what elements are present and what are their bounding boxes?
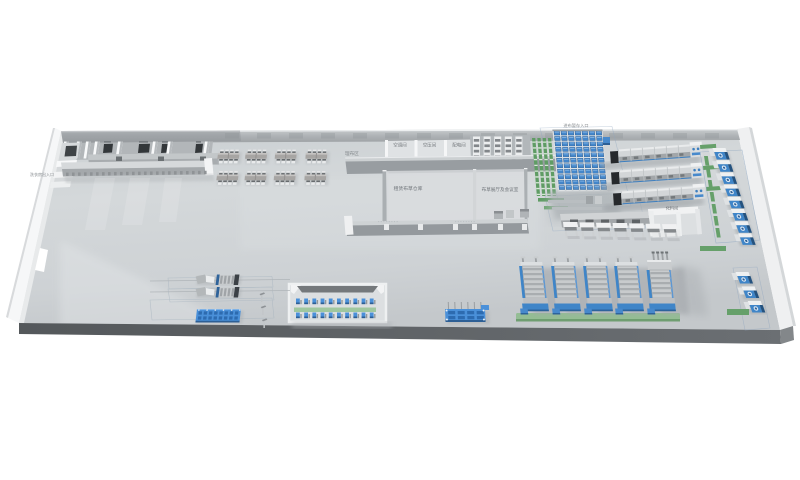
svg-text:空调间: 空调间 <box>393 142 406 149</box>
svg-text:洗衣房出入口: 洗衣房出入口 <box>30 171 54 177</box>
svg-text:布草展厅及会议室: 布草展厅及会议室 <box>482 186 519 193</box>
svg-text:空压间: 空压间 <box>423 142 436 149</box>
svg-text:▪ ▪ ▪ ▪ ▪ ▪ ▪ ▪: ▪ ▪ ▪ ▪ ▪ ▪ ▪ ▪ <box>378 219 399 224</box>
svg-text:配电间: 配电间 <box>452 142 465 149</box>
svg-text:租赁布草仓库: 租赁布草仓库 <box>394 185 423 192</box>
svg-text:理布区: 理布区 <box>345 150 359 157</box>
svg-text:进布暂存入口: 进布暂存入口 <box>563 122 588 129</box>
svg-text:▪ ▪ ▪ ▪ ▪ ▪ ▪ ▪: ▪ ▪ ▪ ▪ ▪ ▪ ▪ ▪ <box>455 219 476 224</box>
svg-text:化料间: 化料间 <box>666 205 679 212</box>
